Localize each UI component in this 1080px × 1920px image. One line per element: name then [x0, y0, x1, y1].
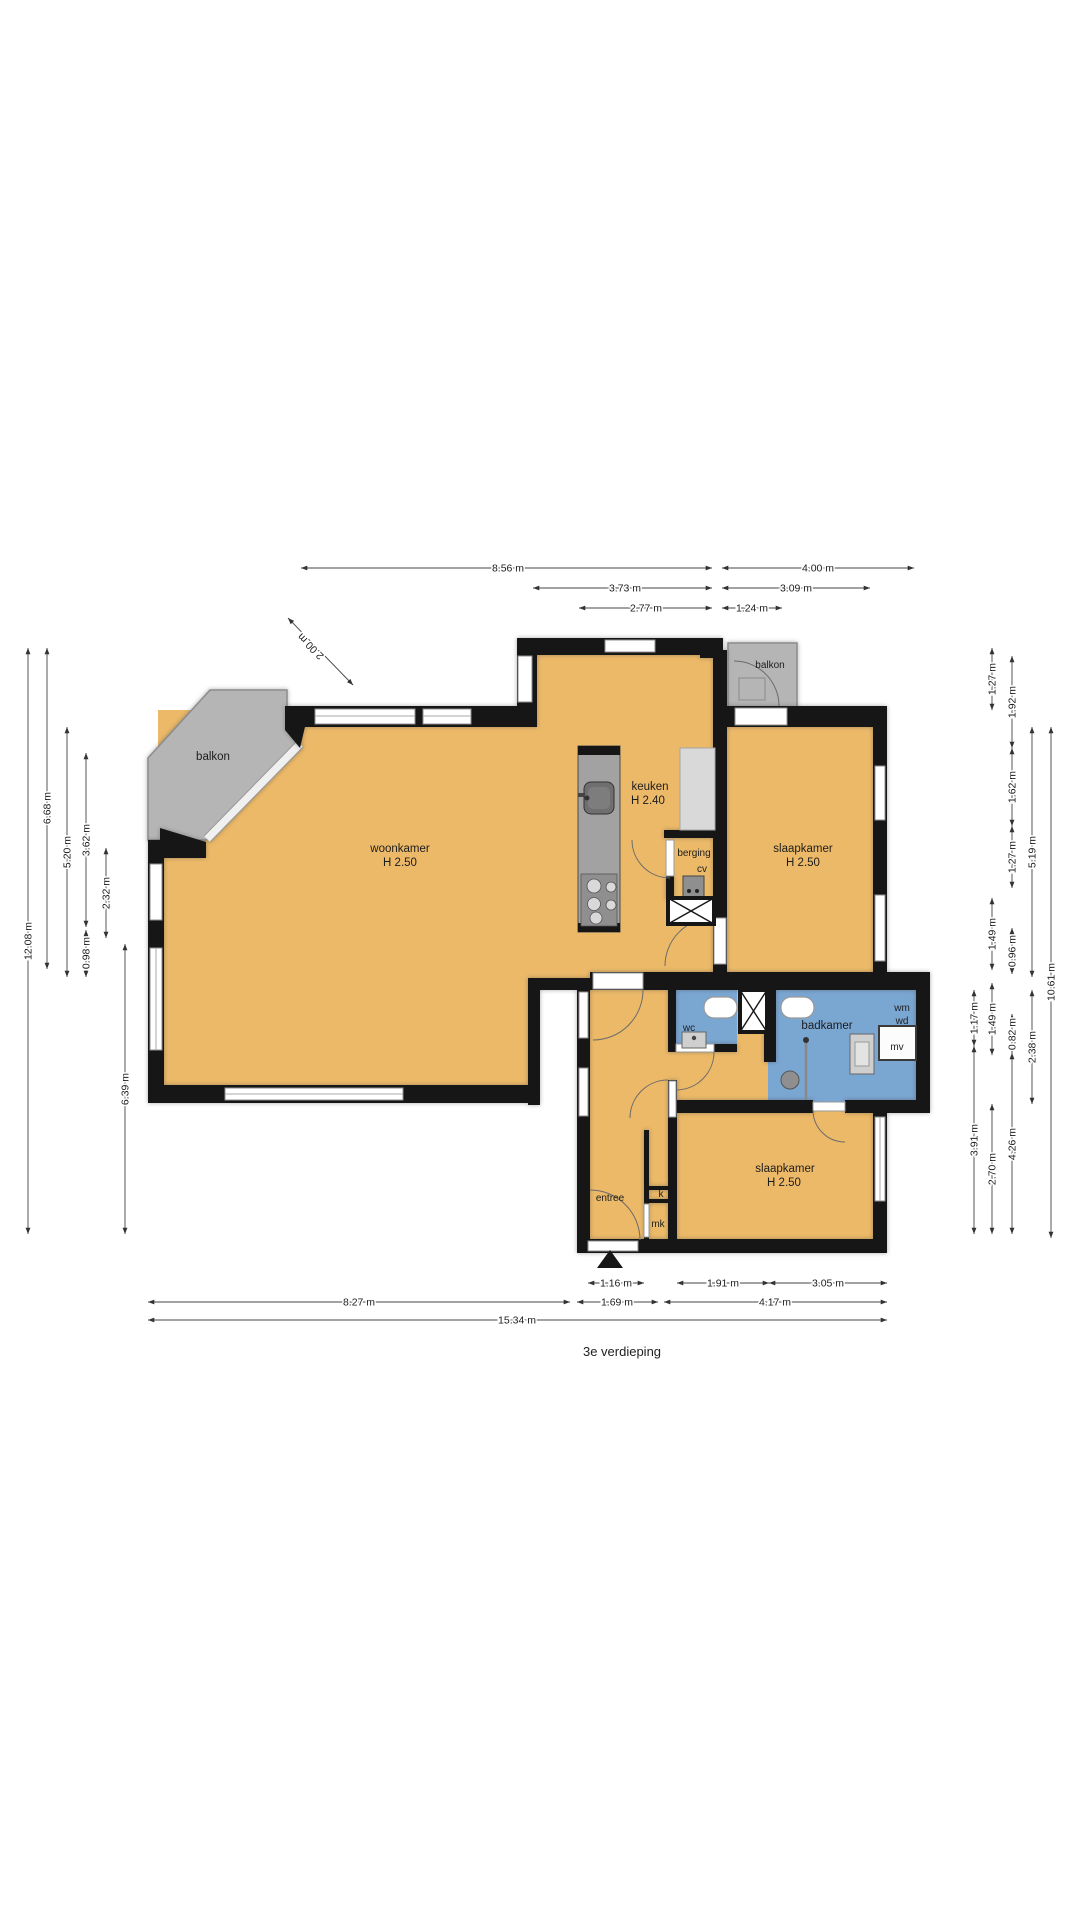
- dimension: 3.91 m: [969, 1046, 981, 1234]
- label-wm: wm: [893, 1003, 910, 1014]
- svg-text:1.27 m: 1.27 m: [987, 663, 999, 695]
- svg-text:2.77 m: 2.77 m: [630, 603, 662, 615]
- label-entree: entree: [596, 1193, 625, 1204]
- label-mv: mv: [890, 1042, 903, 1053]
- dimension: 15.34 m: [148, 1315, 887, 1327]
- dimension: 4.17 m: [664, 1297, 887, 1309]
- svg-text:2.32 m: 2.32 m: [101, 877, 113, 909]
- cv-unit: [683, 876, 704, 897]
- svg-text:1.91 m: 1.91 m: [707, 1278, 739, 1290]
- dimension: 8.56 m: [301, 563, 712, 575]
- window-east-2: [875, 895, 885, 961]
- svg-text:8.27 m: 8.27 m: [343, 1297, 375, 1309]
- label-wd: wd: [895, 1016, 909, 1027]
- dimension: 1.17 m: [969, 990, 981, 1046]
- svg-text:10.61 m: 10.61 m: [1046, 963, 1058, 1001]
- svg-text:3.09 m: 3.09 m: [780, 583, 812, 595]
- svg-text:3.05 m: 3.05 m: [812, 1278, 844, 1290]
- door-badkamer-slaapkamer2: [813, 1102, 845, 1111]
- dimension: 4.26 m: [1007, 1053, 1019, 1234]
- svg-text:15.34 m: 15.34 m: [498, 1315, 536, 1327]
- svg-text:3.73 m: 3.73 m: [609, 583, 641, 595]
- dimension: 1.91 m: [677, 1278, 769, 1290]
- page-title: 3e verdieping: [583, 1344, 661, 1359]
- dimension: 1.24 m: [722, 603, 782, 615]
- floor-keuken-bump: [530, 653, 720, 715]
- svg-text:0.82 m: 0.82 m: [1007, 1018, 1019, 1050]
- svg-text:0.96 m: 0.96 m: [1007, 935, 1019, 967]
- label-keuken-height: H 2.40: [631, 795, 665, 807]
- toilet-icon: [704, 997, 737, 1018]
- label-meterkast: mk: [651, 1219, 665, 1230]
- shaft-icon-2: [740, 990, 767, 1032]
- svg-text:1.27 m: 1.27 m: [1007, 841, 1019, 873]
- dimension: 1.62 m: [1007, 748, 1019, 826]
- dimension: 5.19 m: [1027, 727, 1039, 977]
- shaft-icon: [668, 898, 714, 924]
- label-balkon-left: balkon: [196, 751, 230, 763]
- dimension: 3.62 m: [81, 753, 93, 927]
- window-keuken-north: [605, 640, 655, 652]
- door-balcony-right: [735, 708, 787, 725]
- svg-text:5.19 m: 5.19 m: [1027, 836, 1039, 868]
- dimension: 1.27 m: [1007, 826, 1019, 888]
- dimension: 0.96 m: [1007, 928, 1019, 974]
- svg-text:8.56 m: 8.56 m: [492, 563, 524, 575]
- svg-text:2.38 m: 2.38 m: [1027, 1031, 1039, 1063]
- window-keuken-west: [518, 656, 532, 702]
- svg-text:1.92 m: 1.92 m: [1007, 686, 1019, 718]
- label-slaapkamer-2-height: H 2.50: [767, 1177, 801, 1189]
- label-wc: wc: [682, 1023, 695, 1034]
- dimension: 6.68 m: [42, 648, 54, 969]
- toilet-icon-2: [781, 997, 814, 1018]
- label-woonkamer: woonkamer: [369, 843, 430, 855]
- svg-text:4.26 m: 4.26 m: [1007, 1128, 1019, 1160]
- dimension: 3.05 m: [769, 1278, 887, 1290]
- dimension: 12.08 m: [23, 648, 35, 1234]
- dimension: 1.27 m: [987, 648, 999, 710]
- svg-text:6.39 m: 6.39 m: [120, 1073, 132, 1105]
- label-cv: cv: [697, 864, 707, 875]
- svg-text:1.49 m: 1.49 m: [987, 1003, 999, 1035]
- label-balkon-right: balkon: [755, 660, 784, 671]
- entree-front-door: [588, 1241, 638, 1251]
- window-hal-west-1: [579, 992, 588, 1038]
- label-slaapkamer-2: slaapkamer: [755, 1163, 815, 1175]
- svg-text:2.00 m: 2.00 m: [295, 630, 326, 661]
- dimension: 1.49 m: [987, 983, 999, 1055]
- svg-text:0.98 m: 0.98 m: [81, 937, 93, 969]
- dimension: 5.20 m: [62, 727, 74, 977]
- svg-text:1.62 m: 1.62 m: [1007, 771, 1019, 803]
- window-hal-west-2: [579, 1068, 588, 1116]
- label-keuken: keuken: [631, 781, 668, 793]
- door-slaapkamer2: [669, 1081, 676, 1117]
- door-woonkamer-hal: [593, 973, 643, 989]
- dimension: 3.09 m: [722, 583, 870, 595]
- svg-text:6.68 m: 6.68 m: [42, 792, 54, 824]
- svg-text:1.69 m: 1.69 m: [601, 1297, 633, 1309]
- svg-text:1.49 m: 1.49 m: [987, 918, 999, 950]
- floorplan-drawing: balkon woonkamer H 2.50 keuken H 2.40 be…: [0, 0, 1080, 1920]
- dimension: 6.39 m: [120, 944, 132, 1234]
- label-badkamer: badkamer: [801, 1020, 852, 1032]
- dimension: 0.82 m: [1007, 1014, 1019, 1053]
- label-slaapkamer-1: slaapkamer: [773, 843, 833, 855]
- dimension: 2.38 m: [1027, 990, 1039, 1104]
- dimensions-left: 12.08 m 6.68 m 5.20 m 3.62 m 0.98 m 2.32…: [23, 648, 132, 1234]
- dimension: 1.92 m: [1007, 656, 1019, 748]
- dimension: 8.27 m: [148, 1297, 570, 1309]
- window-slaapkamer1-east: [875, 766, 885, 820]
- dimension-diagonal: 2.00 m: [288, 618, 353, 685]
- dimension: 0.98 m: [81, 930, 93, 977]
- dimension: 2.77 m: [579, 603, 712, 615]
- dimension: 10.61 m: [1046, 727, 1058, 1238]
- svg-text:3.91 m: 3.91 m: [969, 1124, 981, 1156]
- svg-text:12.08 m: 12.08 m: [23, 922, 35, 960]
- svg-text:4.17 m: 4.17 m: [759, 1297, 791, 1309]
- handbasin-icon: [682, 1032, 706, 1048]
- window-west-1: [150, 864, 162, 920]
- door-berging: [666, 840, 674, 876]
- floorplan-page: balkon woonkamer H 2.50 keuken H 2.40 be…: [0, 0, 1080, 1920]
- dimension: 2.70 m: [987, 1104, 999, 1234]
- cooktop-icon: [581, 874, 617, 926]
- label-berging: berging: [677, 848, 710, 859]
- svg-text:1.16 m: 1.16 m: [600, 1278, 632, 1290]
- dimension: 4.00 m: [722, 563, 914, 575]
- dimension: 1.49 m: [987, 898, 999, 970]
- exterior-notch: [540, 988, 577, 1105]
- svg-text:1.24 m: 1.24 m: [736, 603, 768, 615]
- dimension: 2.32 m: [101, 848, 113, 938]
- dimensions-right: 1.27 m 1.92 m 1.62 m 1.27 m 5.19 m 10.61…: [969, 648, 1058, 1238]
- door-meterkast: [644, 1204, 649, 1237]
- dimension: 1.16 m: [588, 1278, 644, 1290]
- svg-text:5.20 m: 5.20 m: [62, 836, 74, 868]
- dimension: 3.73 m: [533, 583, 712, 595]
- svg-text:2.70 m: 2.70 m: [987, 1153, 999, 1185]
- dimensions-bottom: 1.16 m 1.91 m 3.05 m 8.27 m 1.69 m 4.17 …: [148, 1278, 887, 1327]
- svg-text:4.00 m: 4.00 m: [802, 563, 834, 575]
- cupboard: [680, 748, 715, 830]
- svg-text:1.17 m: 1.17 m: [969, 1002, 981, 1034]
- label-slaapkamer-1-height: H 2.50: [786, 857, 820, 869]
- washbasin-icon: [850, 1034, 874, 1074]
- label-woonkamer-height: H 2.50: [383, 857, 417, 869]
- svg-text:3.62 m: 3.62 m: [81, 824, 93, 856]
- dimension: 1.69 m: [577, 1297, 658, 1309]
- kitchen-island: [578, 746, 620, 932]
